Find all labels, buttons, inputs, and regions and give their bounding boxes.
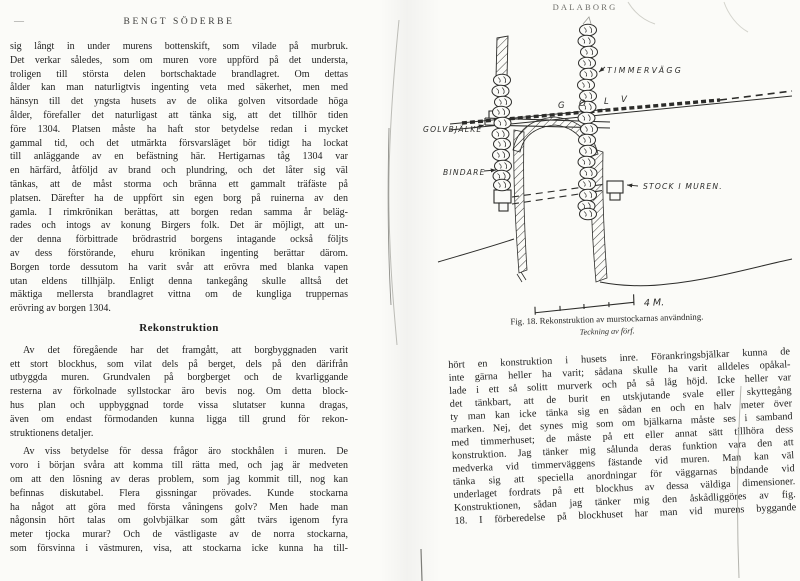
text-line: en härfärd, åtföljd av brand och plundri…: [10, 164, 348, 178]
text-line: gammal tid, och det utmärkta försvarsläg…: [10, 137, 348, 151]
text-line: der denna förbittrade brödrastrid borgen…: [10, 233, 348, 247]
text-line: Av viss betydelse för dessa frågor äro s…: [10, 445, 348, 459]
scale-bar: 4 M.: [535, 293, 665, 315]
text-line: troligen till största delen bortschaktad…: [10, 68, 348, 82]
bindare-arrow: [484, 170, 496, 171]
figure-caption-line2: Teckning av förf.: [580, 326, 635, 336]
text-line: gamla. I rimkrönikan berättas, att borge…: [10, 206, 348, 220]
text-line: utan eldens tillhjälp. Enligt denna tank…: [10, 275, 348, 289]
golv-letter-v: V: [621, 95, 628, 105]
text-line: voro i början svåra att komma till rätta…: [10, 459, 348, 473]
body-text-right: hört en konstruktion i husets inre. Föra…: [448, 345, 797, 528]
paragraph-3: Av viss betydelse för dessa frågor äro s…: [10, 445, 348, 555]
text-line: ha något att göra med första våningens g…: [10, 501, 348, 515]
text-line: ålder, förefaller det naturligast att tä…: [10, 109, 348, 123]
text-line: struktionens detaljer.: [10, 427, 348, 441]
text-line: Av det föregående har det framgått, att …: [10, 344, 348, 358]
text-line: Det verkar således, som om muren vore up…: [10, 54, 348, 68]
text-line: även om endast förmodanden kunna ligga t…: [10, 413, 348, 427]
wall-face-stray-hatch: [517, 272, 526, 282]
text-line: någonsin hört talas om golvbjälkar som g…: [10, 514, 348, 528]
text-line: befinnas diskutabel. Flera gissningar pr…: [10, 487, 348, 501]
text-line: till anläggande av en befästning här. He…: [10, 150, 348, 164]
text-line: om att den lösning av deras problem, som…: [10, 473, 348, 487]
text-line: sig långt in under murens bottenskift, s…: [10, 40, 348, 54]
stock-arrow: [627, 185, 638, 186]
paragraph-1: sig långt in under murens bottenskift, s…: [10, 40, 348, 316]
wall-face-left: [514, 130, 527, 273]
figure-caption-line1: Fig. 18. Rekonstruktion av murstockarnas…: [510, 311, 703, 326]
ground-lines: [438, 239, 792, 286]
text-line: rades och intogs av konung Birgers folk.…: [10, 219, 348, 233]
text-line: utbyggda muren. Grundvalen på borgberget…: [10, 371, 348, 385]
text-line: före 1304. Platsen måste ha haft stor be…: [10, 123, 348, 137]
paragraph-2: Av det föregående har det framgått, att …: [10, 344, 348, 441]
stock-i-muren-label: STOCK I MUREN.: [643, 182, 723, 191]
text-line: resterna av förkolnade syllstockar äro b…: [10, 385, 348, 399]
running-header-left: BENGT SÖDERBE: [10, 17, 348, 27]
section-heading: Rekonstruktion: [10, 322, 348, 336]
golv-letter-o: O: [579, 99, 586, 109]
text-line: erövring av borgen 1304.: [10, 302, 348, 316]
text-line: hänsyn till det yngsta husets av de olik…: [10, 95, 348, 109]
golv-letter-l: L: [604, 97, 609, 107]
timmervagg-arrow: [599, 67, 605, 72]
figure-caption: Fig. 18. Rekonstruktion av murstockarnas…: [510, 311, 704, 338]
figure-18-drawing: TIMMERVÄGG G O L V GOLVBJÄLKE BINDARE ST…: [420, 16, 800, 348]
text-line: som försvinna i västmuren, visa, att sto…: [10, 542, 348, 556]
golvbjalke-label: GOLVBJÄLKE: [423, 125, 482, 134]
golv-letter-g: G: [558, 101, 565, 111]
scale-label: 4 M.: [644, 297, 665, 309]
text-line: hus plan och uppbyggnad torde vissa slut…: [10, 399, 348, 413]
bindare-label: BINDARE: [443, 168, 486, 177]
book-scan: — BENGT SÖDERBE sig långt in under muren…: [0, 0, 800, 581]
running-header-right: DALABORG: [470, 2, 700, 12]
text-line: platsen. Därefter ha de uppfört sin egen…: [10, 192, 348, 206]
body-text-left: sig långt in under murens bottenskift, s…: [10, 40, 348, 556]
timmervagg-label: TIMMERVÄGG: [607, 66, 683, 75]
text-line: ett stort blockhus, som vilat dels på be…: [10, 358, 348, 372]
timber-column-left: [492, 36, 512, 191]
text-line: av dess förstörande, ehuru krönikan inge…: [10, 247, 348, 261]
text-line: mäktiga mellersta brandlagret vittna om …: [10, 288, 348, 302]
text-line: tänkas, att de måst storma och bränna et…: [10, 178, 348, 192]
text-line: meter tjocka murar? Och de västligaste a…: [10, 528, 348, 542]
text-line: Borgen torde dessutom ha varit svår att …: [10, 261, 348, 275]
text-line: ålder kan man naturligtvis ingenting vet…: [10, 81, 348, 95]
